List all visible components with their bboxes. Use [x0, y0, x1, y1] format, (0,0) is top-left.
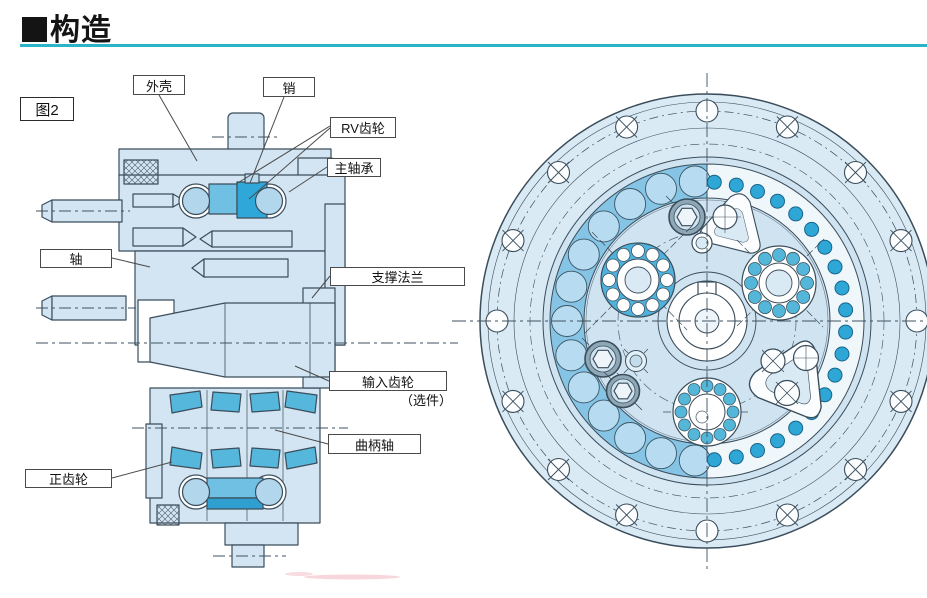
- label-input-gear: 输入齿轮: [329, 371, 447, 391]
- figure-page: 构造 图2: [0, 0, 927, 598]
- page-heading: 构造: [22, 5, 112, 49]
- front-view: [452, 73, 927, 570]
- input-gear-shaft: [150, 303, 335, 377]
- print-smudge-small: [285, 572, 313, 576]
- label-main-bearing: 主轴承: [327, 158, 381, 177]
- main-bearing-ball-top-left: [183, 188, 210, 215]
- label-spur-gear: 正齿轮: [25, 469, 112, 488]
- label-input-gear-note: （选件）: [377, 391, 452, 407]
- main-bearing-ball-top-right: [256, 188, 283, 215]
- print-smudge: [304, 575, 400, 580]
- heading-bullet-square: [22, 17, 47, 42]
- label-housing: 外壳: [133, 75, 185, 95]
- rv-gear-section-top-left: [209, 184, 237, 214]
- label-rv-gear: RV齿轮: [330, 117, 396, 138]
- cross-section-view: [36, 113, 458, 567]
- page-title: 构造: [50, 5, 112, 49]
- rv-gear-section-bottom: [207, 498, 263, 509]
- small-pin-hole: [624, 349, 648, 373]
- label-crankshaft: 曲柄轴: [328, 434, 421, 454]
- label-pin: 销: [263, 77, 315, 97]
- label-shaft: 轴: [40, 249, 112, 268]
- figure-number-tag: 图2: [20, 97, 74, 121]
- title-rule: [20, 44, 927, 47]
- label-support-flange: 支撑法兰: [330, 267, 465, 286]
